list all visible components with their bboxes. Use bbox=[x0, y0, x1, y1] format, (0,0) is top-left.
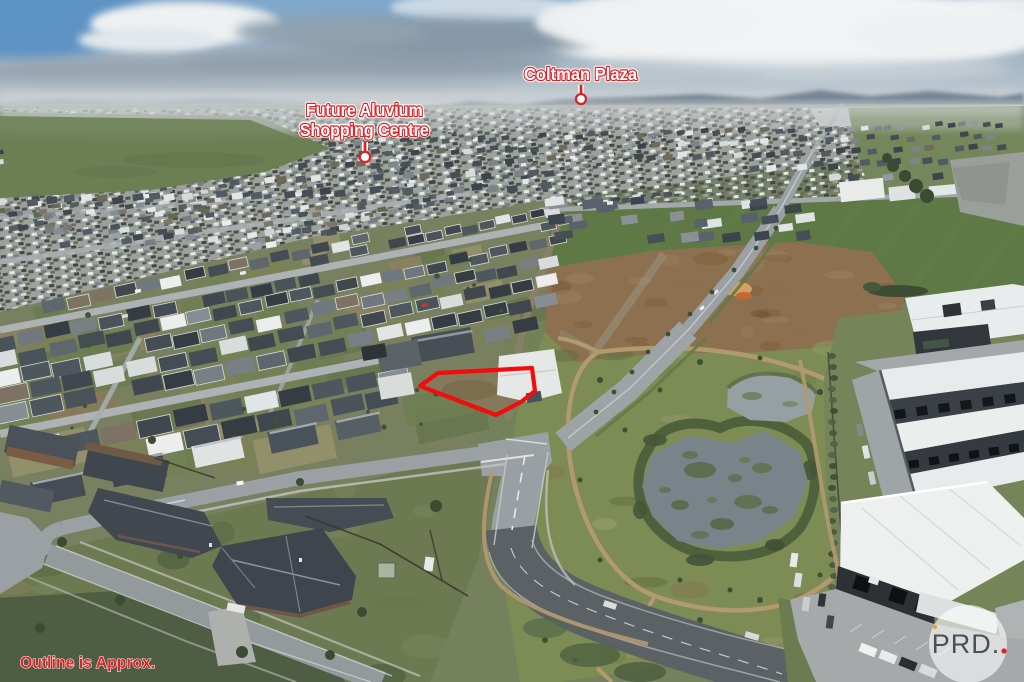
svg-text:Future Aluvium: Future Aluvium bbox=[306, 100, 423, 120]
svg-text:Outline is Approx.: Outline is Approx. bbox=[20, 654, 155, 673]
svg-text:PRD.: PRD. bbox=[932, 629, 1001, 659]
svg-text:Shopping Centre: Shopping Centre bbox=[300, 120, 429, 140]
svg-text:Coltman Plaza: Coltman Plaza bbox=[524, 63, 637, 84]
